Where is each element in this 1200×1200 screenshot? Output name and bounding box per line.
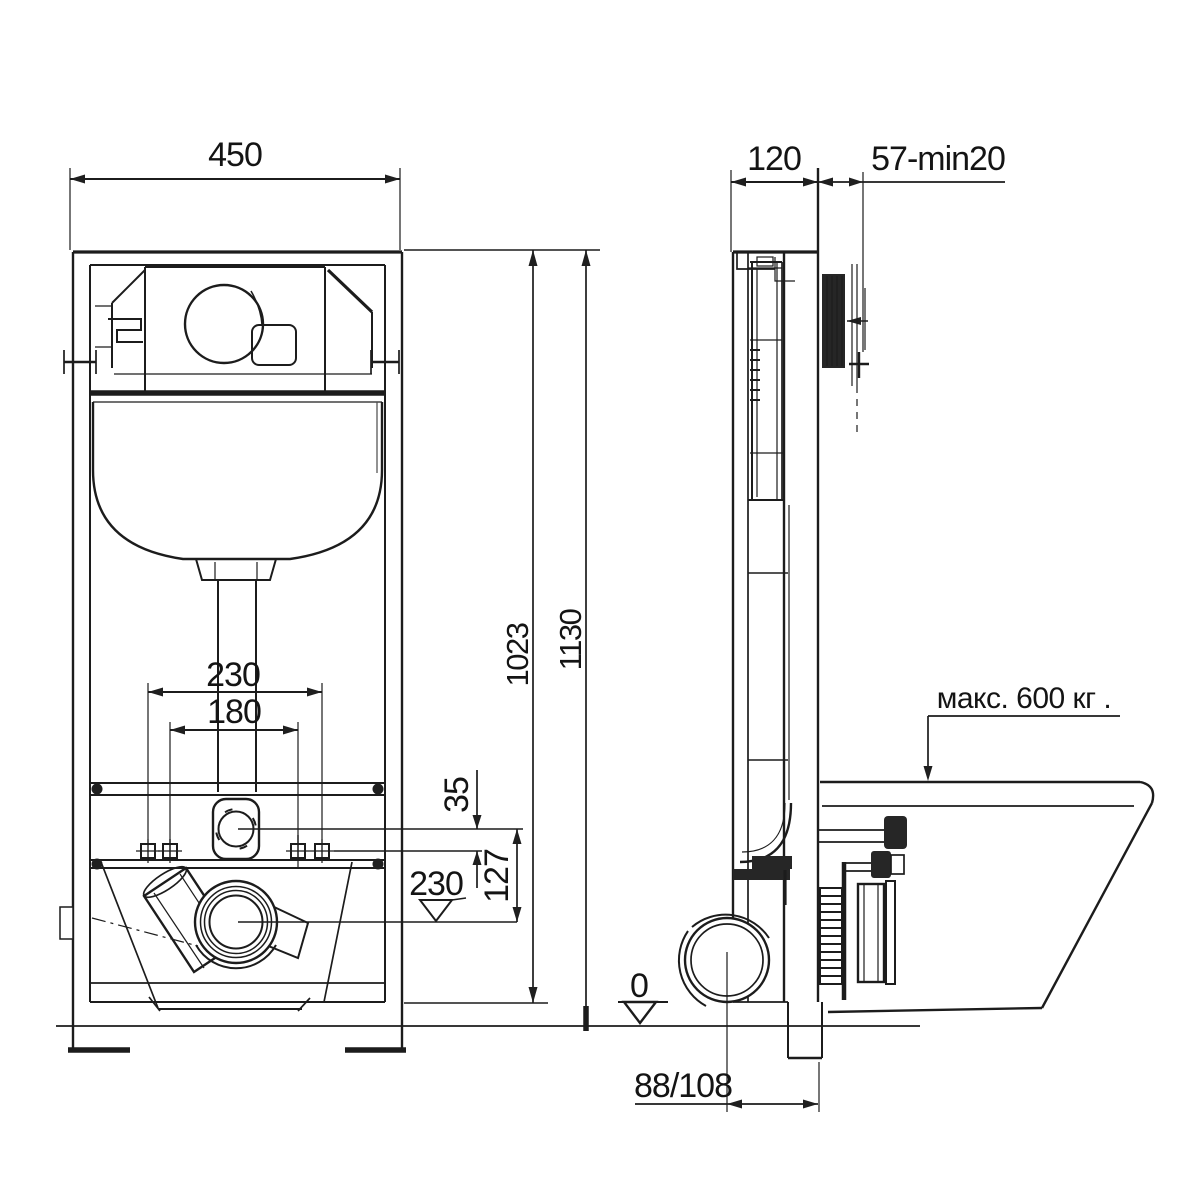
installation-frame-drawing: 450 (0, 0, 1200, 1200)
arrow-up-icon (582, 250, 591, 266)
float-box (252, 325, 296, 365)
mounting-bolts (136, 835, 334, 868)
rail-bracket (60, 907, 73, 939)
arrow-up-icon (513, 829, 522, 844)
arrow-down-icon (473, 815, 482, 829)
arrow-down-icon (513, 907, 522, 922)
dim-depth: 120 (731, 140, 818, 252)
arrow-right-icon (385, 175, 400, 184)
dim-total-height: 1130 (553, 250, 591, 1031)
dim-180-label: 180 (207, 693, 261, 731)
mounting-hardware (818, 816, 907, 878)
arrow-down-icon (924, 766, 933, 781)
arrow-right-icon (803, 1100, 818, 1109)
arrow-left-icon (847, 317, 861, 325)
dim-120-label: 120 (747, 140, 801, 178)
front-view: 450 (60, 136, 600, 1050)
arrow-left-icon (148, 688, 163, 697)
outlet-connector (820, 862, 895, 1000)
arrow-left-icon (818, 178, 833, 187)
dim-supply-to-outlet: 127 (478, 829, 522, 922)
dim-level-230-label: 230 (409, 865, 463, 903)
arrow-right-icon (283, 726, 298, 735)
bolt-head (884, 816, 907, 849)
dim-bolt-inner: 180 (170, 693, 298, 858)
access-box (90, 267, 385, 402)
dim-width-label: 450 (208, 136, 262, 174)
dim-127-label: 127 (478, 849, 516, 903)
arrow-right-icon (307, 688, 322, 697)
flush-spigot (752, 856, 792, 869)
dim-1130-label: 1130 (553, 608, 588, 670)
finish-lines (849, 264, 869, 432)
wall-bracket-mark-left (64, 350, 96, 374)
side-frame (733, 168, 818, 1002)
dim-finish-range: 57-min20 (818, 140, 1005, 352)
arrow-down-icon (529, 987, 538, 1003)
cross-members (90, 783, 385, 870)
dim-57min20-label: 57-min20 (871, 140, 1005, 178)
dim-outlet-offset: 88/108 (634, 1062, 819, 1112)
arrow-up-icon (529, 250, 538, 266)
floor-level-mark: 0 (618, 967, 668, 1023)
load-annotation: макс. 600 кг . (924, 682, 1121, 781)
drawing-page: 450 (0, 0, 1200, 1200)
cistern-outlet (196, 559, 276, 580)
lower-cross-member (733, 869, 790, 880)
arrow-left-icon (731, 178, 746, 187)
arrow-left-icon (70, 175, 85, 184)
dim-230-label: 230 (206, 656, 260, 694)
floor-level-label: 0 (630, 967, 648, 1005)
dim-bolt-outer: 230 (148, 656, 322, 858)
max-load-label: макс. 600 кг . (937, 682, 1112, 715)
dim-1023-label: 1023 (500, 623, 535, 686)
flush-unit-block (822, 274, 868, 368)
level-triangle-icon (420, 900, 452, 921)
arrow-left-icon (170, 726, 185, 735)
frame-foot (788, 1002, 822, 1058)
dim-width: 450 (70, 136, 400, 250)
side-view: 120 57-min20 (618, 140, 1153, 1112)
nut (871, 851, 891, 878)
level-triangle-icon (624, 1002, 656, 1023)
arrow-right-icon (803, 178, 818, 187)
waste-elbow-front (92, 862, 308, 972)
arrow-right-icon (849, 178, 863, 187)
inlet-pipe-coil (108, 319, 143, 342)
dim-35-label: 35 (438, 777, 476, 813)
dim-88-108-label: 88/108 (634, 1067, 732, 1105)
cistern (93, 402, 382, 580)
